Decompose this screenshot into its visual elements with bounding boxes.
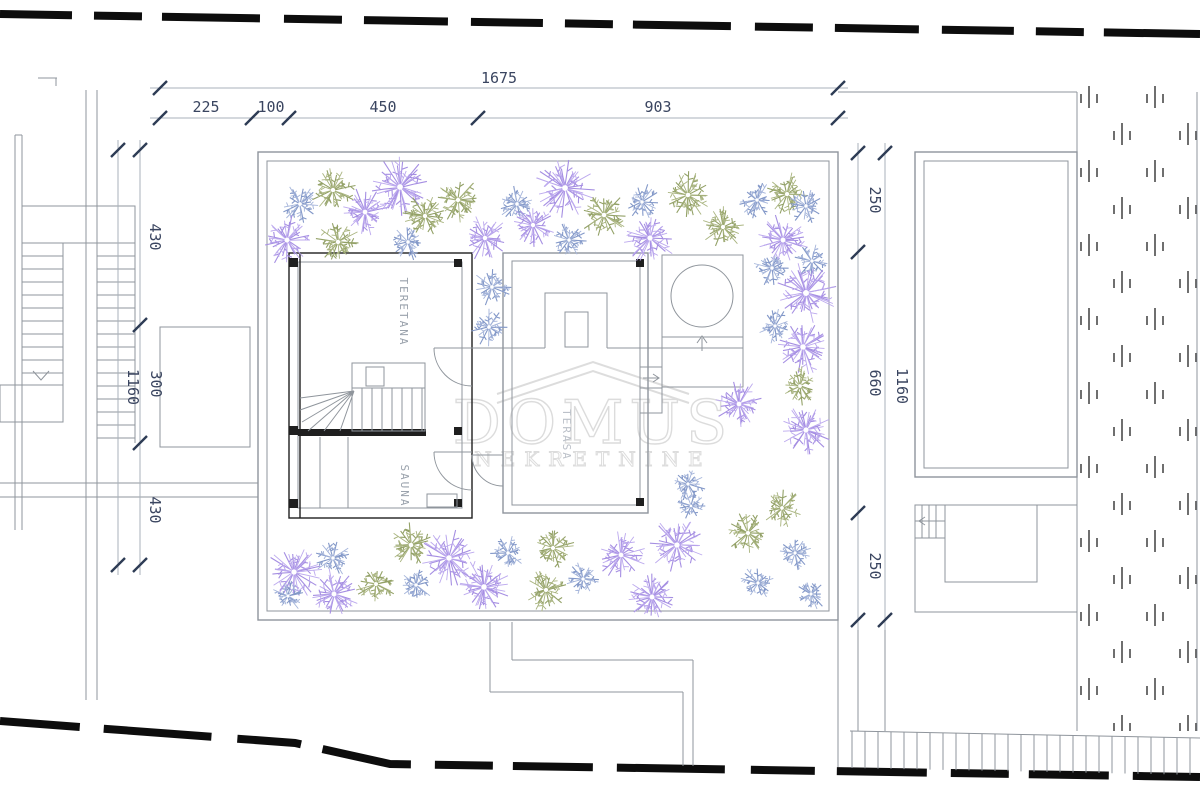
building-inner-walls	[298, 262, 462, 508]
terrace-alcove-box	[565, 312, 588, 347]
pool-house-inner	[945, 505, 1037, 582]
room-label-teretana: TERETANA	[397, 278, 410, 347]
wall-column	[289, 426, 298, 435]
stair-left-wall	[15, 135, 22, 530]
sauna-partitions	[320, 437, 348, 508]
door-arc	[434, 348, 472, 386]
dim-label-right-seg3: 250	[866, 552, 884, 579]
plant-olive	[767, 177, 801, 213]
garden-path	[490, 622, 693, 766]
dim-label-left-seg3: 430	[146, 496, 164, 523]
entry-porch	[160, 327, 250, 447]
pool-inner	[924, 161, 1068, 468]
stair-lower-landing	[0, 385, 63, 422]
plant-purple	[780, 325, 824, 373]
plants-layer	[265, 157, 836, 617]
wall-column	[454, 499, 462, 507]
plant-blue	[568, 567, 599, 590]
plant-olive	[356, 572, 391, 601]
pool-house-arrow	[919, 517, 941, 525]
plant-blue	[795, 247, 826, 274]
plant-purple	[536, 161, 592, 215]
building: TERETANA SAUNA	[289, 253, 472, 518]
wall-column	[454, 259, 462, 267]
plant-purple	[540, 160, 595, 218]
wall-column	[636, 498, 644, 506]
dim-label-top-total: 1675	[481, 69, 517, 87]
plant-purple	[778, 328, 825, 375]
interior-stair-risers	[362, 388, 422, 431]
terrace-alcove	[545, 293, 607, 348]
plant-olive	[440, 183, 474, 222]
path-lines	[490, 622, 693, 766]
sidewalk-lines	[0, 483, 258, 497]
plant-blue	[284, 187, 318, 220]
interior-stairs-outline	[352, 363, 425, 431]
plant-purple	[783, 409, 829, 455]
plant-blue	[675, 471, 703, 500]
sauna-bench	[427, 494, 457, 507]
plant-purple	[601, 532, 645, 572]
corner-mark	[38, 78, 57, 86]
land-hatch	[1077, 78, 1197, 731]
floor-plan-page: DOMUS NEKRETNINE TERETANA SAUNA	[0, 0, 1200, 797]
land-hatch-strip	[1077, 78, 1197, 731]
plant-purple	[780, 263, 834, 323]
plant-blue	[502, 190, 532, 219]
plant-olive	[438, 182, 477, 220]
dim-label-top-seg3: 450	[369, 98, 396, 116]
room-label-terasa: TERASA	[560, 409, 573, 461]
plant-blue	[554, 224, 581, 255]
dim-label-left-total: 1160	[124, 369, 142, 405]
plant-olive	[394, 530, 426, 562]
stair-side-wall	[86, 90, 97, 700]
stair-shaft	[366, 367, 384, 386]
watermark-subtitle: NEKRETNINE	[474, 447, 712, 471]
winder-stairs	[300, 391, 354, 431]
dim-label-right-total: 1160	[893, 368, 911, 404]
spa-outline	[662, 255, 743, 387]
spa-up-arrow	[697, 336, 707, 351]
wall-column	[289, 258, 298, 267]
plant-olive	[539, 531, 574, 568]
plant-blue	[745, 569, 771, 595]
plant-blue	[799, 583, 823, 607]
dim-label-left-seg2: 300	[147, 370, 165, 397]
plant-olive	[537, 533, 573, 562]
boundary-line-bottom	[0, 721, 1200, 777]
plant-blue	[678, 494, 703, 514]
stair-direction-arrow	[33, 371, 49, 380]
stair-flight-edges	[63, 206, 135, 443]
plant-purple	[313, 576, 355, 614]
dim-label-left-seg1: 430	[146, 223, 164, 250]
pool-parcel	[838, 92, 1077, 612]
dim-label-top-seg1: 225	[192, 98, 219, 116]
dim-label-right-seg1: 250	[866, 186, 884, 213]
dim-label-top-seg2: 100	[257, 98, 284, 116]
room-label-sauna: SAUNA	[398, 464, 411, 507]
spa-circle	[671, 265, 733, 327]
site-plan-canvas: DOMUS NEKRETNINE TERETANA SAUNA	[0, 0, 1200, 797]
retaining-wall-line	[850, 731, 1200, 738]
wall-column	[289, 499, 298, 508]
dim-label-top-seg4: 903	[644, 98, 671, 116]
plant-blue	[273, 584, 300, 609]
plant-blue	[316, 542, 349, 574]
wall-column	[454, 427, 462, 435]
plant-blue	[495, 536, 522, 567]
boundary-line-top	[0, 14, 1200, 34]
dim-label-right-seg2: 660	[866, 369, 884, 396]
plant-purple	[422, 535, 474, 583]
plant-purple	[790, 410, 829, 454]
plant-olive	[528, 572, 562, 612]
plant-olive	[669, 171, 706, 217]
plant-purple	[628, 219, 672, 256]
pool-outline	[915, 152, 1077, 477]
